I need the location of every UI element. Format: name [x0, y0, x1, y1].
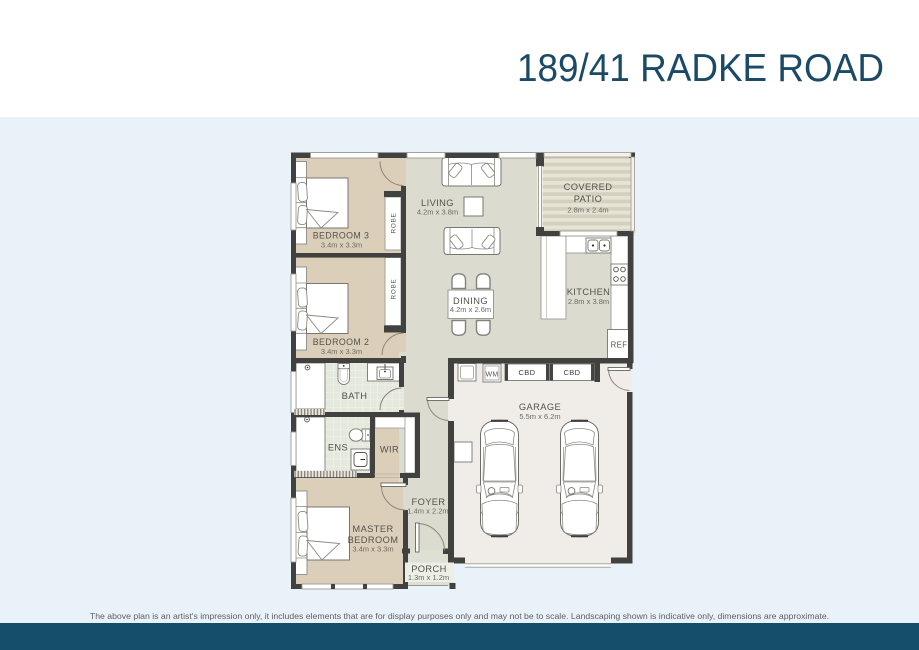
svg-text:3.4m x 3.3m: 3.4m x 3.3m	[352, 545, 393, 554]
svg-text:2.8m x 2.4m: 2.8m x 2.4m	[567, 206, 608, 215]
svg-text:LIVING: LIVING	[421, 198, 454, 208]
svg-text:GARAGE: GARAGE	[519, 402, 561, 412]
svg-text:BATH: BATH	[342, 391, 368, 401]
svg-text:ROBE: ROBE	[391, 279, 398, 300]
svg-text:COVERED: COVERED	[564, 182, 613, 192]
svg-text:BEDROOM: BEDROOM	[348, 535, 399, 545]
svg-text:5.5m x 6.2m: 5.5m x 6.2m	[519, 412, 560, 421]
svg-text:189/41 RADKE ROAD: 189/41 RADKE ROAD	[517, 47, 884, 90]
svg-text:4.2m x 2.6m: 4.2m x 2.6m	[450, 305, 491, 314]
svg-text:BEDROOM 2: BEDROOM 2	[313, 337, 370, 347]
svg-text:ENS: ENS	[328, 443, 348, 453]
svg-text:3.4m x 3.3m: 3.4m x 3.3m	[321, 347, 362, 356]
svg-text:CBD: CBD	[518, 368, 535, 377]
svg-text:PATIO: PATIO	[574, 194, 603, 204]
svg-text:MASTER: MASTER	[352, 524, 393, 534]
svg-text:3.4m x 3.3m: 3.4m x 3.3m	[321, 241, 362, 250]
svg-text:CBD: CBD	[563, 368, 580, 377]
svg-text:FOYER: FOYER	[411, 497, 445, 507]
svg-text:ROBE: ROBE	[391, 213, 398, 234]
svg-text:The above plan is an artist's: The above plan is an artist's impression…	[90, 611, 829, 621]
svg-text:1.3m x 1.2m: 1.3m x 1.2m	[408, 573, 449, 582]
svg-text:REF: REF	[611, 341, 628, 350]
svg-text:1.4m x 2.2m: 1.4m x 2.2m	[407, 507, 448, 516]
svg-text:BEDROOM 3: BEDROOM 3	[313, 231, 370, 241]
svg-text:2.8m x 3.8m: 2.8m x 3.8m	[568, 297, 609, 306]
svg-text:WM: WM	[485, 372, 498, 379]
svg-text:WIR: WIR	[380, 445, 399, 455]
svg-text:KITCHEN: KITCHEN	[567, 287, 611, 297]
svg-text:4.2m x 3.8m: 4.2m x 3.8m	[417, 208, 458, 217]
